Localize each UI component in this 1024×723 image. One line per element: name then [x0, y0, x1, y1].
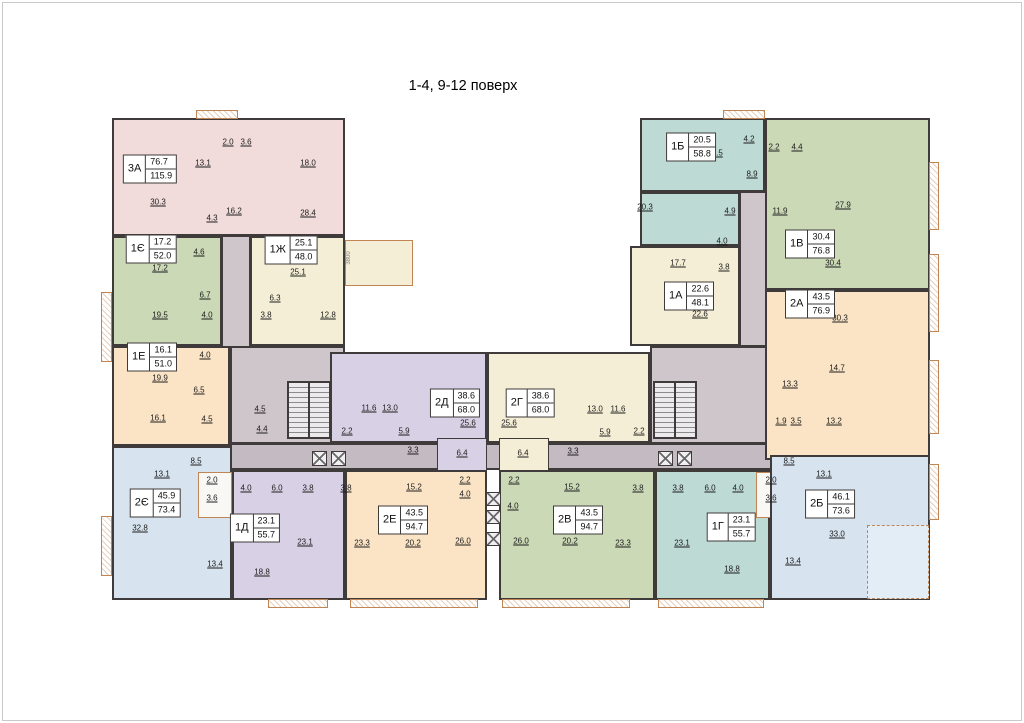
shaft-icon [486, 492, 501, 506]
room-area-label: 3.5 [790, 417, 801, 426]
room-area-label: 3.8 [260, 311, 271, 320]
room-area-label: 3.6 [206, 494, 217, 503]
room-area-label: 19.5 [152, 311, 168, 320]
apartment-1zh-terrace [345, 240, 413, 286]
room-area-label: 1.9 [775, 417, 786, 426]
room-area-label: 18.0 [300, 159, 316, 168]
apartment-code: 2Є [131, 490, 153, 517]
apartment-area-total: 48.1 [687, 297, 713, 310]
room-area-label: 12.8 [320, 311, 336, 320]
room-area-label: 11.6 [362, 404, 377, 413]
apartment-label-1А: 1А22.648.1 [664, 282, 714, 311]
apartment-area-total: 58.8 [689, 148, 715, 161]
apartment-2b-loggia [867, 525, 929, 599]
apartment-label-1Ж: 1Ж25.148.0 [265, 236, 318, 265]
apartment-label-1Е: 1Е16.151.0 [127, 343, 177, 372]
apartment-code: 1Є [127, 236, 149, 263]
apartment-code: 1Ж [266, 237, 290, 264]
room-area-label: 5.9 [599, 428, 610, 437]
room-area-label: 3.6 [765, 494, 776, 503]
floor-plan: 3А76.7115.92.03.613.118.030.316.24.328.4… [0, 0, 1024, 723]
room-area-label: 4.6 [193, 248, 204, 257]
room-area-label: 23.1 [297, 538, 313, 547]
apartment-code: 1Д [231, 515, 253, 542]
room-area-label: 4.5 [201, 415, 212, 424]
room-area-label: 2.0 [222, 138, 233, 147]
room-area-label: 25.1 [290, 268, 306, 277]
shaft-icon [486, 532, 501, 546]
balcony [101, 516, 112, 576]
apartment-code: 1В [786, 231, 807, 258]
staircase-left [287, 381, 331, 439]
room-area-label: 23.3 [615, 539, 631, 548]
apartment-label-2А: 2А43.576.9 [785, 290, 835, 319]
room-area-label: 28.4 [300, 209, 316, 218]
apartment-area-total: 76.9 [808, 305, 834, 318]
room-area-label: 4.0 [507, 502, 518, 511]
elevator-icon [677, 451, 692, 466]
apartment-area-live: 43.5 [808, 291, 834, 305]
apartment-area-total: 68.0 [528, 404, 554, 417]
room-area-label: 18.8 [254, 568, 270, 577]
room-area-label: 15.2 [406, 483, 422, 492]
apartment-label-1Є: 1Є17.252.0 [126, 235, 177, 264]
room-area-label: 19.9 [152, 374, 168, 383]
apartment-code: 1Е [128, 344, 149, 371]
apartment-area-total: 52.0 [150, 250, 176, 263]
apartment-area-total: 73.6 [828, 505, 854, 518]
room-area-label: 15.2 [564, 483, 580, 492]
room-area-label: 8.5 [783, 457, 794, 466]
apartment-area-total: 73.4 [154, 504, 180, 517]
apartment-area-live: 23.1 [254, 515, 280, 529]
room-area-label: 33.0 [829, 530, 845, 539]
balcony [350, 599, 478, 608]
apartment-label-1В: 1В30.476.8 [785, 230, 835, 259]
apartment-area-total: 68.0 [454, 404, 480, 417]
apartment-area-live: 20.5 [689, 134, 715, 148]
apartment-label-2Б: 2Б46.173.6 [805, 490, 855, 519]
common-area-label: 3800 [346, 251, 352, 264]
room-area-label: 17.7 [670, 259, 686, 268]
apartment-code: 1Г [708, 514, 728, 541]
room-area-label: 5.9 [398, 427, 409, 436]
room-area-label: 30.4 [825, 259, 841, 268]
apartment-area-live: 38.6 [454, 390, 480, 404]
room-area-label: 11.6 [611, 405, 626, 414]
room-area-label: 32.8 [132, 524, 148, 533]
room-area-label: 13.0 [382, 404, 398, 413]
room-area-label: 18.8 [724, 565, 740, 574]
room-area-label: 4.9 [724, 207, 735, 216]
room-area-label: 4.0 [240, 484, 251, 493]
balcony [929, 162, 939, 230]
room-area-label: 20.2 [405, 539, 421, 548]
apartment-label-2Д: 2Д38.668.0 [430, 389, 480, 418]
apartment-area-live: 43.5 [401, 507, 427, 521]
apartment-area-live: 17.2 [150, 236, 176, 250]
room-area-label: 13.4 [207, 560, 223, 569]
room-area-label: 25.6 [460, 419, 476, 428]
room-area-label: 8.9 [746, 170, 757, 179]
balcony [929, 254, 939, 332]
room-area-label: 6.3 [269, 294, 280, 303]
room-area-label: 13.0 [587, 405, 603, 414]
apartment-area-total: 115.9 [146, 170, 176, 183]
room-area-label: 4.4 [791, 143, 802, 152]
room-area-label: 14.7 [829, 364, 845, 373]
apartment-label-2Е: 2Е43.594.7 [378, 506, 428, 535]
room-area-label: 26.0 [455, 537, 471, 546]
apartment-area-live: 46.1 [828, 491, 854, 505]
elevator-icon [312, 451, 327, 466]
room-area-label: 3.8 [340, 484, 351, 493]
apartment-area-total: 94.7 [576, 521, 602, 534]
apartment-code: 2Б [806, 491, 827, 518]
room-area-label: 8.5 [190, 457, 201, 466]
apartment-area-total: 48.0 [291, 251, 317, 264]
apartment-area-total: 51.0 [150, 358, 176, 371]
room-area-label: 4.0 [732, 484, 743, 493]
room-area-label: 3.8 [302, 484, 313, 493]
room-area-label: 4.0 [716, 237, 727, 246]
balcony [658, 599, 764, 608]
room-area-label: 6.5 [193, 386, 204, 395]
apartment-area-live: 38.6 [528, 390, 554, 404]
apartment-code: 2В [554, 507, 575, 534]
apartment-area-live: 30.4 [808, 231, 834, 245]
room-area-label: 3.3 [567, 447, 578, 456]
apartment-label-1Д: 1Д23.155.7 [230, 514, 280, 543]
apartment-label-2Г: 2Г38.668.0 [506, 389, 555, 418]
room-area-label: 2.2 [768, 143, 779, 152]
room-area-label: 27.9 [835, 201, 851, 210]
apartment-code: 2Г [507, 390, 527, 417]
room-area-label: 4.0 [199, 351, 210, 360]
room-area-label: 2.2 [459, 476, 470, 485]
floor-title: 1-4, 9-12 поверх [409, 78, 518, 94]
room-area-label: 23.3 [354, 539, 370, 548]
common-area-label: 4.5 [254, 405, 265, 414]
room-area-label: 2.2 [508, 476, 519, 485]
apartment-area-live: 45.9 [154, 490, 180, 504]
room-area-label: 3.3 [407, 446, 418, 455]
apartment-code: 2Д [431, 390, 453, 417]
apartment-label-2В: 2В43.594.7 [553, 506, 603, 535]
room-area-label: 6.4 [456, 449, 467, 458]
corridor-left-wing [222, 236, 250, 348]
balcony [502, 599, 630, 608]
apartment-area-total: 94.7 [401, 521, 427, 534]
room-area-label: 4.0 [459, 490, 470, 499]
apartment-area-live: 43.5 [576, 507, 602, 521]
shaft-icon [486, 510, 501, 524]
balcony [268, 599, 328, 608]
apartment-area-live: 22.6 [687, 283, 713, 297]
balcony [101, 292, 112, 362]
apartment-code: 3А [124, 156, 145, 183]
room-area-label: 16.1 [150, 414, 166, 423]
balcony [929, 464, 939, 520]
apartment-label-1Г: 1Г23.155.7 [707, 513, 756, 542]
apartment-label-1Б: 1Б20.558.8 [666, 133, 716, 162]
room-area-label: 13.1 [816, 470, 832, 479]
room-area-label: 3.8 [718, 263, 729, 272]
room-area-label: 25.6 [501, 419, 517, 428]
room-area-label: 20.3 [637, 203, 653, 212]
room-area-label: 4.0 [201, 311, 212, 320]
apartment-area-live: 76.7 [146, 156, 176, 170]
balcony [196, 110, 238, 119]
common-area-label: 4.4 [256, 425, 267, 434]
apartment-label-3А: 3А76.7115.9 [123, 155, 177, 184]
apartment-area-live: 23.1 [729, 514, 755, 528]
room-area-label: 2.0 [206, 476, 217, 485]
room-area-label: 3.8 [632, 484, 643, 493]
room-area-label: 6.7 [199, 291, 210, 300]
apartment-area-live: 25.1 [291, 237, 317, 251]
room-area-label: 6.0 [271, 484, 282, 493]
room-area-label: 3.6 [240, 138, 251, 147]
apartment-area-total: 76.8 [808, 245, 834, 258]
room-area-label: 30.3 [150, 198, 166, 207]
balcony [929, 360, 939, 434]
apartment-code: 2Е [379, 507, 400, 534]
room-area-label: 6.0 [704, 484, 715, 493]
room-area-label: 13.1 [154, 470, 170, 479]
apartment-2ye-block [112, 446, 232, 600]
apartment-area-total: 55.7 [729, 528, 755, 541]
room-area-label: 16.2 [226, 207, 242, 216]
room-area-label: 3.8 [672, 484, 683, 493]
room-area-label: 23.1 [674, 539, 690, 548]
room-area-label: 17.2 [152, 264, 168, 273]
room-area-label: 13.2 [826, 417, 842, 426]
room-area-label: 13.1 [195, 159, 211, 168]
room-area-label: 13.4 [785, 557, 801, 566]
room-area-label: 4.3 [206, 214, 217, 223]
balcony [723, 110, 765, 119]
apartment-code: 1Б [667, 134, 688, 161]
apartment-area-live: 16.1 [150, 344, 176, 358]
room-area-label: 20.2 [562, 537, 578, 546]
room-area-label: 6.4 [517, 449, 528, 458]
room-area-label: 26.0 [513, 537, 529, 546]
apartment-area-total: 55.7 [254, 529, 280, 542]
room-area-label: 22.6 [692, 310, 708, 319]
corridor-right-wing [740, 192, 767, 346]
elevator-icon [331, 451, 346, 466]
apartment-code: 2А [786, 291, 807, 318]
apartment-code: 1А [665, 283, 686, 310]
room-area-label: 2.2 [341, 427, 352, 436]
apartment-label-2Є: 2Є45.973.4 [130, 489, 181, 518]
elevator-icon [658, 451, 673, 466]
staircase-right [653, 381, 697, 439]
room-area-label: 13.3 [782, 380, 798, 389]
room-area-label: 2.0 [765, 476, 776, 485]
room-area-label: 4.2 [743, 135, 754, 144]
room-area-label: 2.2 [633, 427, 644, 436]
room-area-label: 11.9 [773, 207, 788, 216]
